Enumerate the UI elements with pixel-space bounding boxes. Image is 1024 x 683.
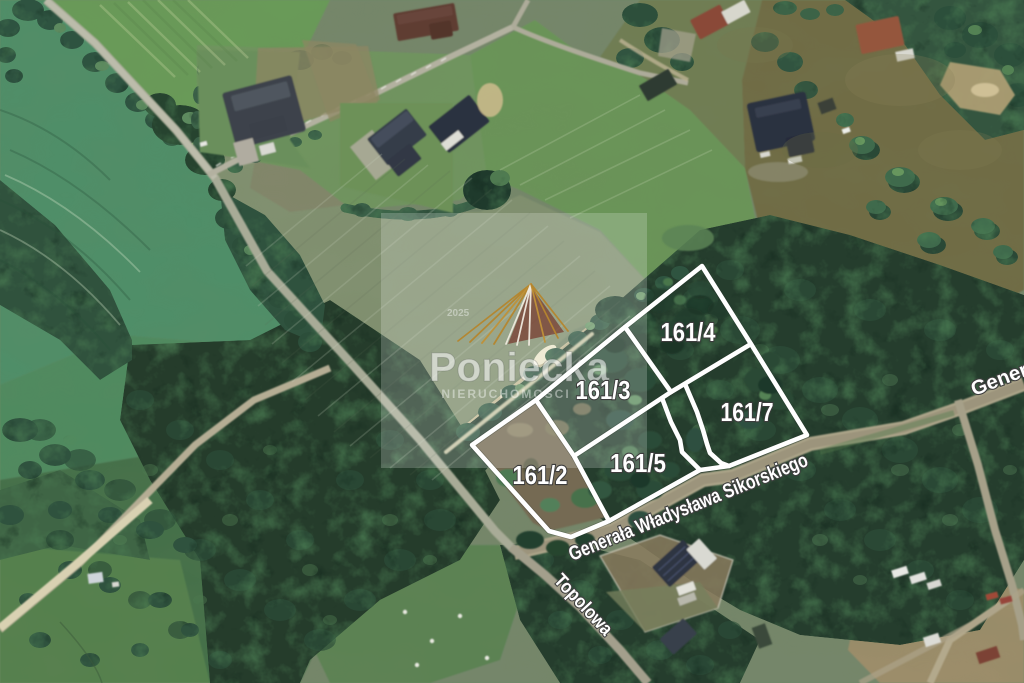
svg-text:161/5: 161/5: [610, 448, 666, 478]
svg-text:161/7: 161/7: [721, 397, 774, 427]
svg-text:161/3: 161/3: [576, 375, 631, 405]
svg-text:2025: 2025: [447, 308, 470, 319]
svg-text:161/2: 161/2: [513, 460, 568, 490]
svg-text:161/4: 161/4: [661, 317, 716, 347]
